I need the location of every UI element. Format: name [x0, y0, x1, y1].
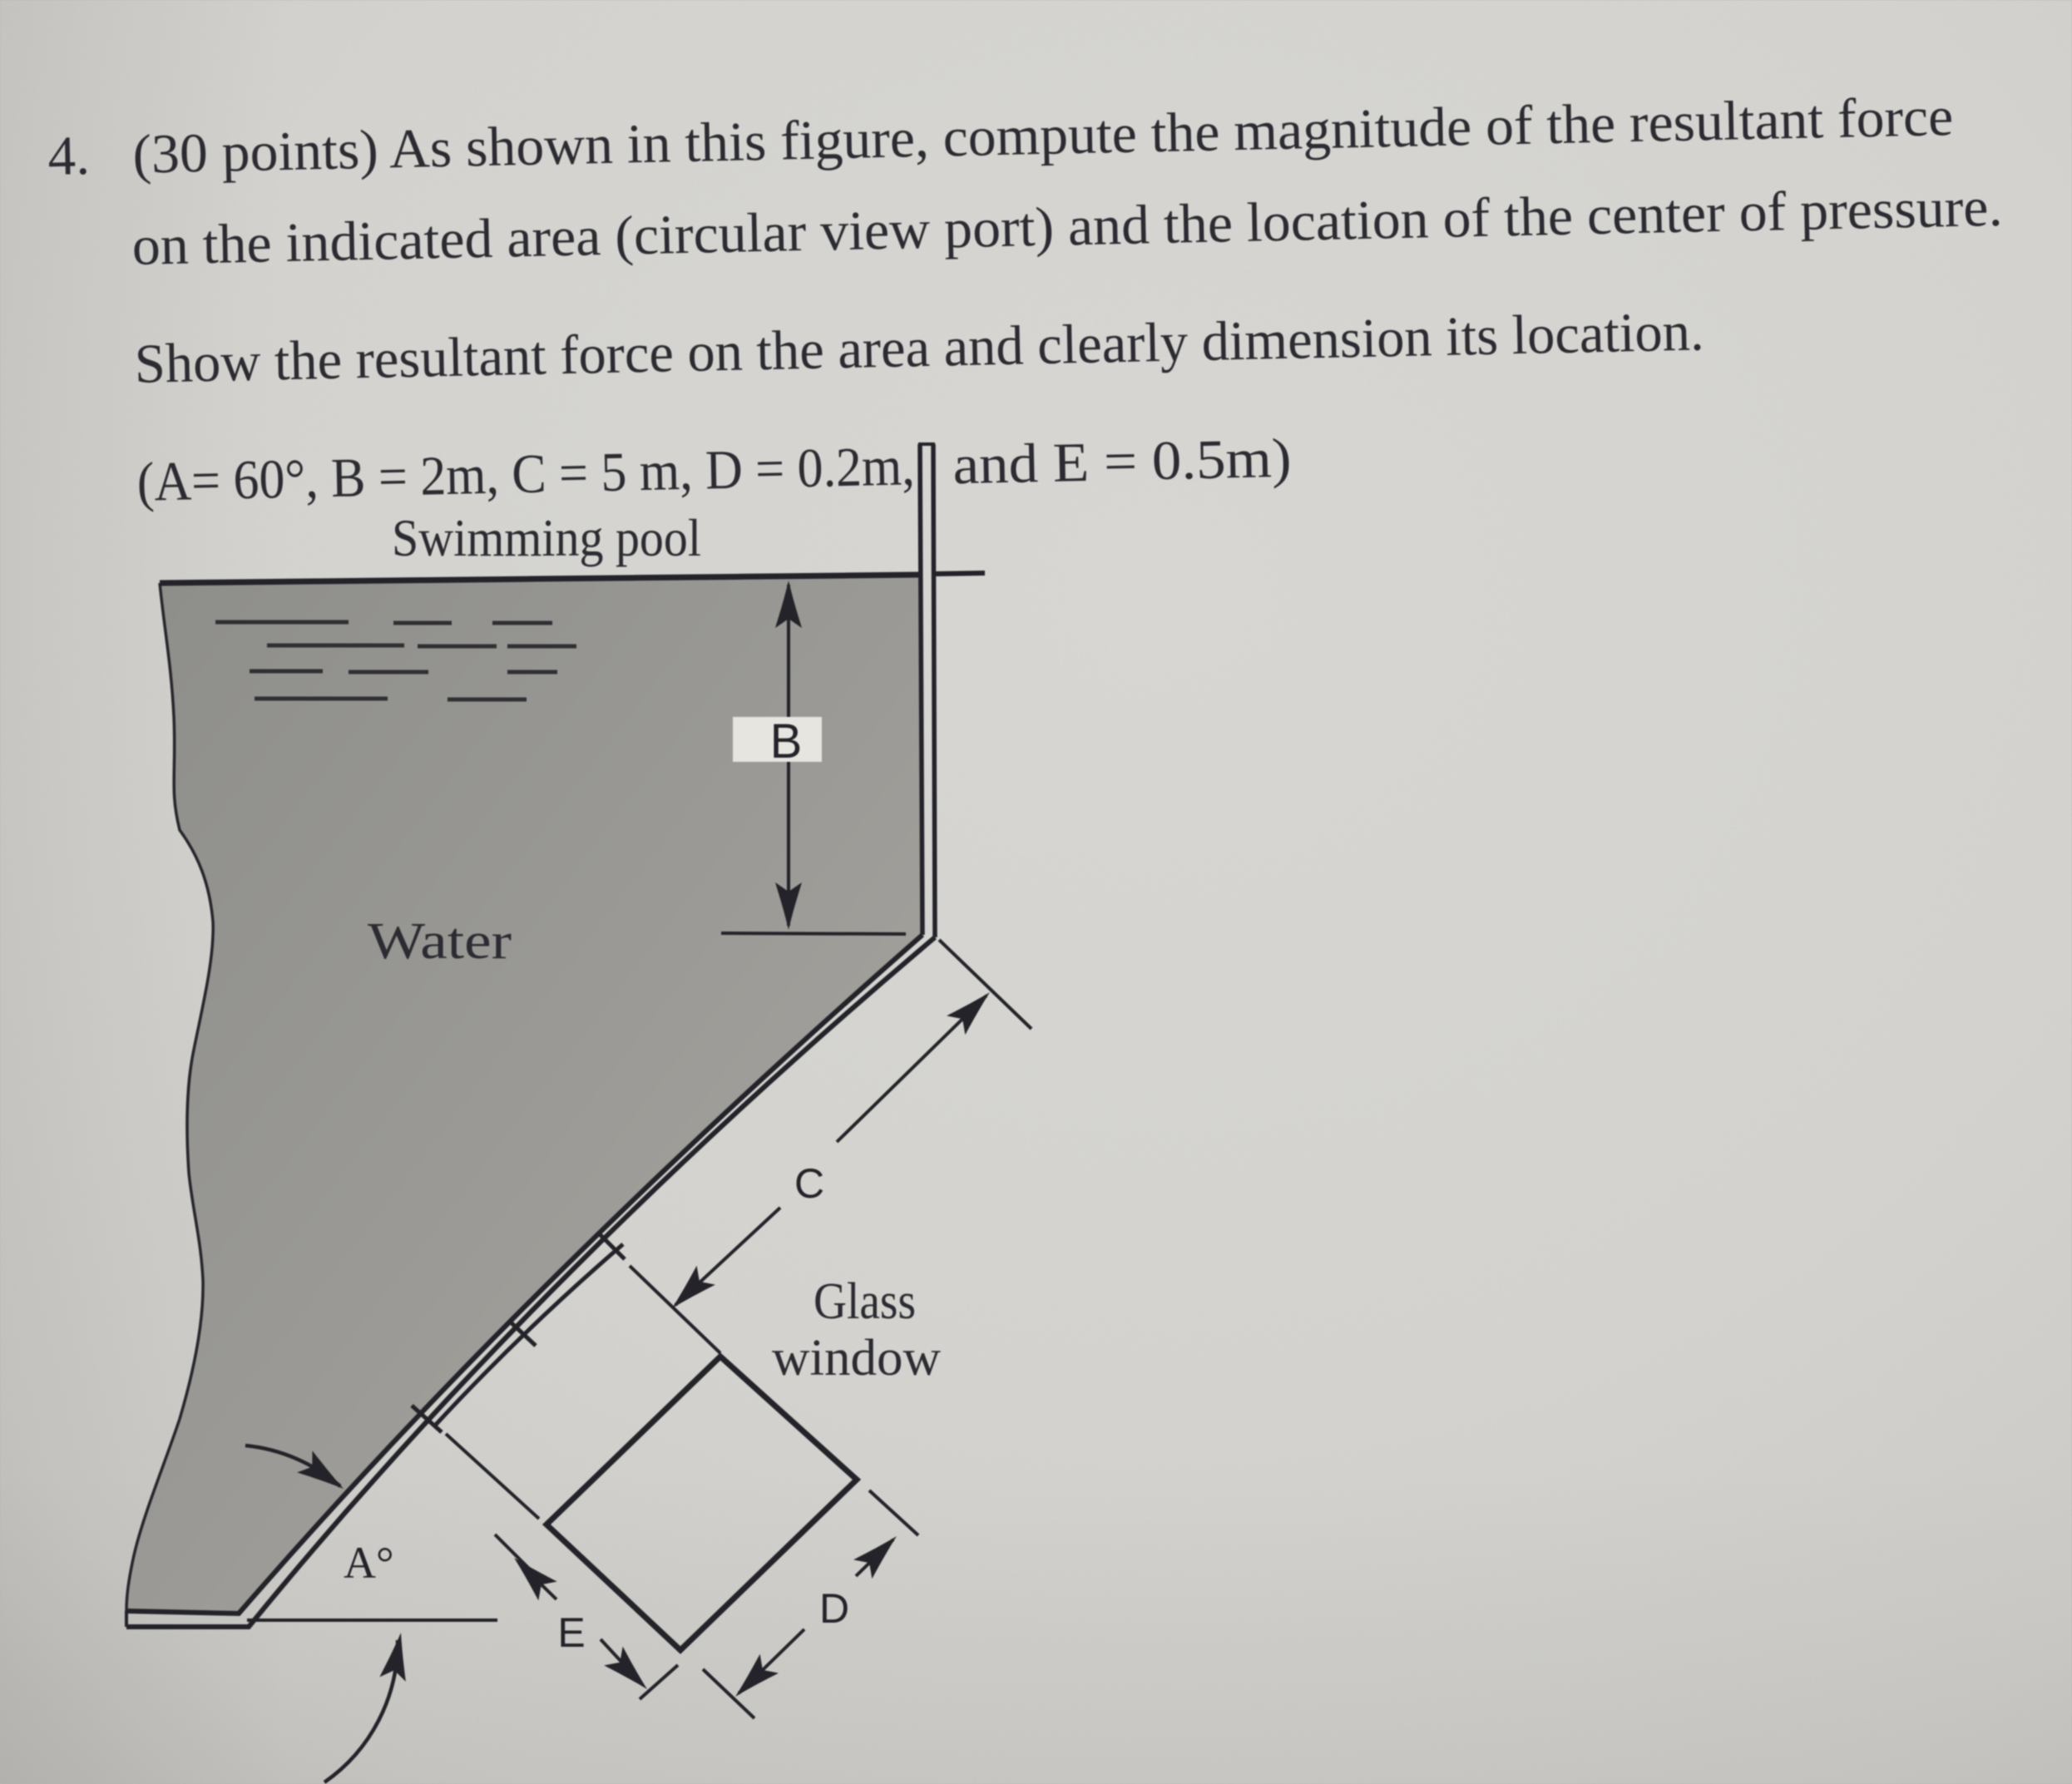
svg-text:window: window: [772, 1330, 941, 1386]
svg-text:A°: A°: [344, 1538, 394, 1588]
svg-text:C: C: [794, 1160, 824, 1207]
svg-text:Water: Water: [368, 913, 512, 970]
svg-text:Glass: Glass: [813, 1273, 916, 1330]
svg-text:B: B: [770, 714, 803, 768]
svg-text:and E = 0.5m): and E = 0.5m): [952, 427, 1292, 497]
svg-text:D: D: [819, 1585, 849, 1632]
svg-text:4.: 4.: [47, 125, 91, 187]
svg-text:E: E: [557, 1609, 585, 1656]
svg-text:Swimming pool: Swimming pool: [392, 508, 701, 567]
